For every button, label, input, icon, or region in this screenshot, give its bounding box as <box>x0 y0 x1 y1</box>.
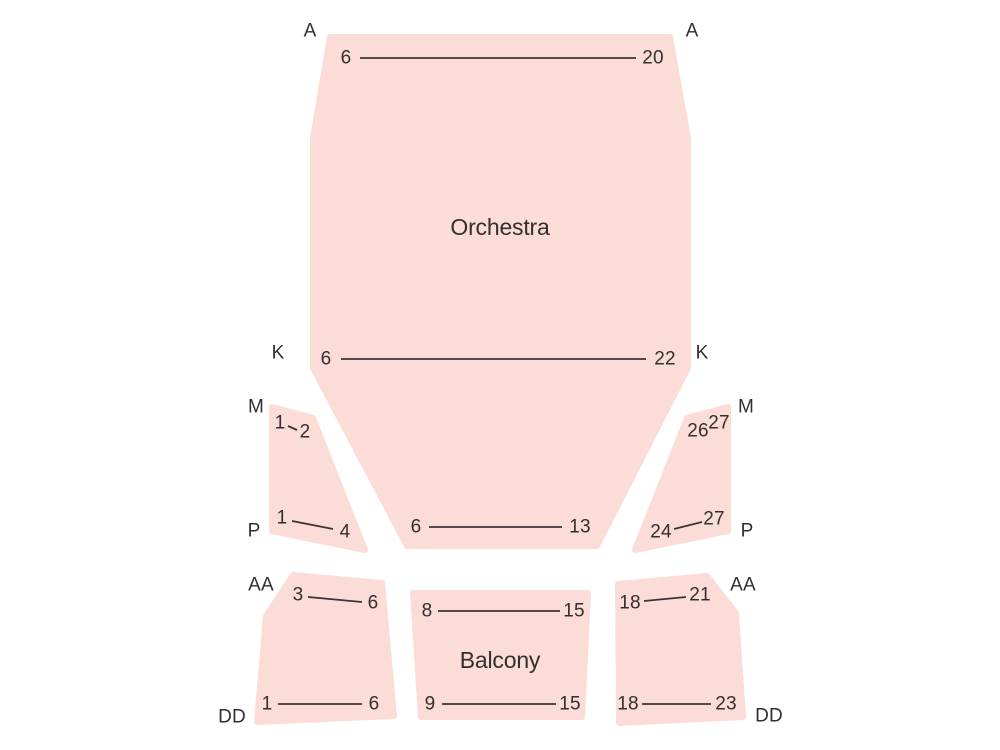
orchestra-row-front-seat-first: 6 <box>411 517 422 538</box>
balcony-right-row-aa-seat-first: 18 <box>619 593 641 614</box>
side-right-row-p-seat-first: 24 <box>650 522 672 543</box>
side-left-row-m-seat-last: 2 <box>300 422 311 443</box>
orchestra-section-shape[interactable] <box>313 37 688 546</box>
orchestra-row-a-seat-first: 6 <box>341 48 352 69</box>
balcony-left-row-aa-seat-last: 6 <box>368 593 379 614</box>
orchestra-row-a-label-left: A <box>304 21 317 42</box>
side-right-row-p-seat-last: 27 <box>703 509 725 530</box>
balcony-left-row-dd-seat-first: 1 <box>262 694 273 715</box>
orchestra-row-k-seat-first: 6 <box>321 349 332 370</box>
balcony-right-row-aa-seat-last: 21 <box>689 585 711 606</box>
balcony-center-section: 8 15 Balcony 9 15 <box>413 593 588 717</box>
side-right-row-m-seat-first: 26 <box>687 421 709 442</box>
orchestra-row-front-seat-last: 13 <box>569 517 591 538</box>
balcony-left-row-aa-seat-first: 3 <box>293 585 304 606</box>
orchestra-row-a-seat-last: 20 <box>642 48 664 69</box>
balcony-left-row-dd-seat-last: 6 <box>369 694 380 715</box>
orchestra-row-k-seat-last: 22 <box>654 349 676 370</box>
balcony-right-section: AA 18 21 DD 18 23 <box>617 575 783 727</box>
balcony-center-row-bottom-seat-last: 15 <box>559 694 581 715</box>
seating-chart: A A 6 20 Orchestra K K 6 22 6 13 M 1 2 <box>0 0 1000 750</box>
balcony-left-row-dd-label: DD <box>218 707 246 728</box>
side-right-row-m-label: M <box>738 397 754 418</box>
orchestra-section: A A 6 20 Orchestra K K 6 22 6 13 <box>272 21 709 547</box>
orchestra-section-title: Orchestra <box>450 214 550 240</box>
orchestra-row-k-label-left: K <box>272 343 285 364</box>
side-right-row-p-label: P <box>741 521 754 542</box>
balcony-center-row-top-seat-first: 8 <box>422 601 433 622</box>
balcony-section-title: Balcony <box>460 647 541 673</box>
balcony-right-row-dd-seat-first: 18 <box>617 694 639 715</box>
side-left-row-m-label: M <box>248 397 264 418</box>
side-left-row-m-seat-first: 1 <box>275 413 286 434</box>
balcony-center-row-bottom-seat-first: 9 <box>425 694 436 715</box>
orchestra-row-a-label-right: A <box>686 21 699 42</box>
balcony-right-row-dd-seat-last: 23 <box>715 694 737 715</box>
balcony-center-row-top-seat-last: 15 <box>563 601 585 622</box>
side-left-row-p-label: P <box>248 521 261 542</box>
side-left-row-p-seat-first: 1 <box>277 508 288 529</box>
balcony-right-row-dd-label: DD <box>755 706 783 727</box>
balcony-left-section: AA 3 6 DD 1 6 <box>218 575 394 728</box>
side-left-row-p-seat-last: 4 <box>340 522 351 543</box>
balcony-right-row-aa-label: AA <box>730 575 756 596</box>
side-right-row-m-seat-last: 27 <box>708 413 730 434</box>
orchestra-row-k-label-right: K <box>696 343 709 364</box>
balcony-left-row-aa-label: AA <box>248 575 274 596</box>
seating-chart-canvas: A A 6 20 Orchestra K K 6 22 6 13 M 1 2 <box>0 0 1000 750</box>
